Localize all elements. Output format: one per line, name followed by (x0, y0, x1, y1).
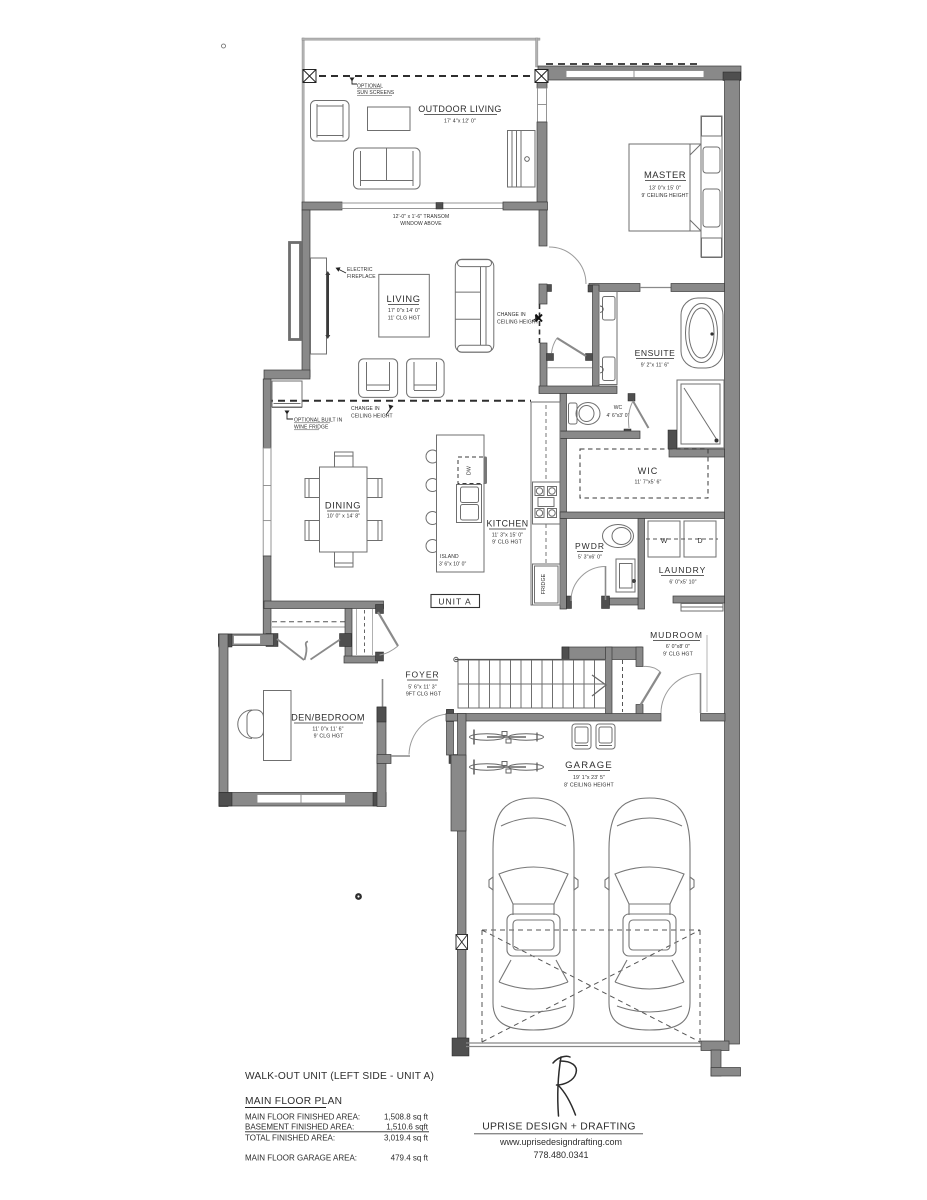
svg-text:19' 1"x 23' 5": 19' 1"x 23' 5" (573, 775, 605, 781)
svg-text:11' CLG HGT: 11' CLG HGT (388, 316, 421, 322)
svg-text:1,508.8 sq ft: 1,508.8 sq ft (384, 1113, 429, 1122)
svg-text:FRIDGE: FRIDGE (541, 573, 547, 594)
svg-text:479.4 sq ft: 479.4 sq ft (391, 1154, 429, 1163)
svg-text:4' 6"x3' 0": 4' 6"x3' 0" (607, 413, 630, 419)
svg-text:6' 0"x8' 0": 6' 0"x8' 0" (666, 644, 690, 650)
svg-text:FOYER: FOYER (405, 670, 439, 680)
svg-text:OUTDOOR LIVING: OUTDOOR LIVING (418, 104, 502, 114)
svg-text:3' 6"x 10' 0": 3' 6"x 10' 0" (439, 562, 466, 568)
svg-text:UNIT A: UNIT A (438, 597, 471, 607)
svg-text:WALK-OUT UNIT (LEFT SIDE - UNI: WALK-OUT UNIT (LEFT SIDE - UNIT A) (245, 1071, 434, 1082)
svg-text:TOTAL FINISHED AREA:: TOTAL FINISHED AREA: (245, 1134, 335, 1143)
svg-text:WIC: WIC (638, 466, 659, 476)
svg-text:17' 0"x 14' 0": 17' 0"x 14' 0" (388, 308, 420, 314)
svg-text:9' CLG HGT: 9' CLG HGT (314, 734, 345, 740)
svg-text:DW: DW (467, 466, 473, 475)
svg-text:CHANGE IN: CHANGE IN (351, 406, 380, 412)
svg-text:9FT CLG HGT: 9FT CLG HGT (406, 692, 442, 698)
svg-text:12'-0" x 1'-6" TRANSOM: 12'-0" x 1'-6" TRANSOM (393, 214, 449, 220)
svg-text:UPRISE DESIGN + DRAFTING: UPRISE DESIGN + DRAFTING (482, 1122, 636, 1133)
svg-text:MAIN FLOOR PLAN: MAIN FLOOR PLAN (245, 1096, 342, 1107)
svg-text:11' 3"x 15' 0": 11' 3"x 15' 0" (492, 533, 524, 539)
svg-text:LIVING: LIVING (386, 294, 420, 304)
svg-text:10' 0" x 14' 8": 10' 0" x 14' 8" (327, 514, 361, 520)
svg-text:KITCHEN: KITCHEN (486, 519, 528, 529)
svg-text:9' CLG HGT: 9' CLG HGT (663, 652, 694, 658)
svg-text:WINDOW ABOVE: WINDOW ABOVE (400, 221, 442, 227)
svg-text:ISLAND: ISLAND (440, 554, 459, 560)
svg-text:MAIN FLOOR FINISHED AREA:: MAIN FLOOR FINISHED AREA: (245, 1113, 360, 1122)
svg-text:5' 3"x6' 0": 5' 3"x6' 0" (578, 555, 602, 561)
svg-text:www.uprisedesigndrafting.com: www.uprisedesigndrafting.com (499, 1137, 622, 1147)
svg-text:9' 2"x 11' 6": 9' 2"x 11' 6" (641, 363, 670, 369)
svg-text:DEN/BEDROOM: DEN/BEDROOM (291, 713, 365, 723)
svg-text:5' 6"x 11' 3": 5' 6"x 11' 3" (408, 685, 437, 691)
svg-text:CHANGE IN: CHANGE IN (497, 312, 526, 318)
svg-text:FIREPLACE: FIREPLACE (347, 274, 376, 280)
svg-text:MUDROOM: MUDROOM (650, 630, 703, 640)
svg-text:GARAGE: GARAGE (565, 760, 613, 771)
svg-text:MASTER: MASTER (644, 169, 686, 180)
svg-text:11' 7"x5' 6": 11' 7"x5' 6" (635, 480, 662, 486)
svg-text:BASEMENT FINISHED AREA:: BASEMENT FINISHED AREA: (245, 1123, 354, 1132)
svg-text:9' CLG HGT: 9' CLG HGT (492, 540, 523, 546)
svg-text:LAUNDRY: LAUNDRY (659, 565, 706, 575)
svg-text:11' 0"x 11' 6": 11' 0"x 11' 6" (312, 727, 343, 733)
svg-text:778.480.0341: 778.480.0341 (533, 1150, 588, 1160)
svg-text:ELECTRIC: ELECTRIC (347, 267, 373, 273)
svg-text:3,019.4 sq ft: 3,019.4 sq ft (384, 1134, 429, 1143)
svg-text:DINING: DINING (325, 501, 361, 511)
svg-text:ENSUITE: ENSUITE (635, 348, 676, 358)
svg-text:9' CEILING HEIGHT: 9' CEILING HEIGHT (641, 193, 688, 199)
svg-text:8' CEILING HEIGHT: 8' CEILING HEIGHT (564, 783, 614, 789)
svg-text:MAIN FLOOR GARAGE AREA:: MAIN FLOOR GARAGE AREA: (245, 1154, 357, 1163)
svg-text:13' 0"x 15' 0": 13' 0"x 15' 0" (649, 186, 681, 192)
svg-text:WC: WC (614, 405, 623, 411)
svg-text:PWDR: PWDR (575, 541, 605, 551)
svg-text:1,510.6 sqft: 1,510.6 sqft (386, 1123, 429, 1132)
svg-text:17' 4"x 12' 0": 17' 4"x 12' 0" (444, 119, 476, 125)
svg-text:6' 0"x5' 10": 6' 0"x5' 10" (669, 580, 696, 586)
